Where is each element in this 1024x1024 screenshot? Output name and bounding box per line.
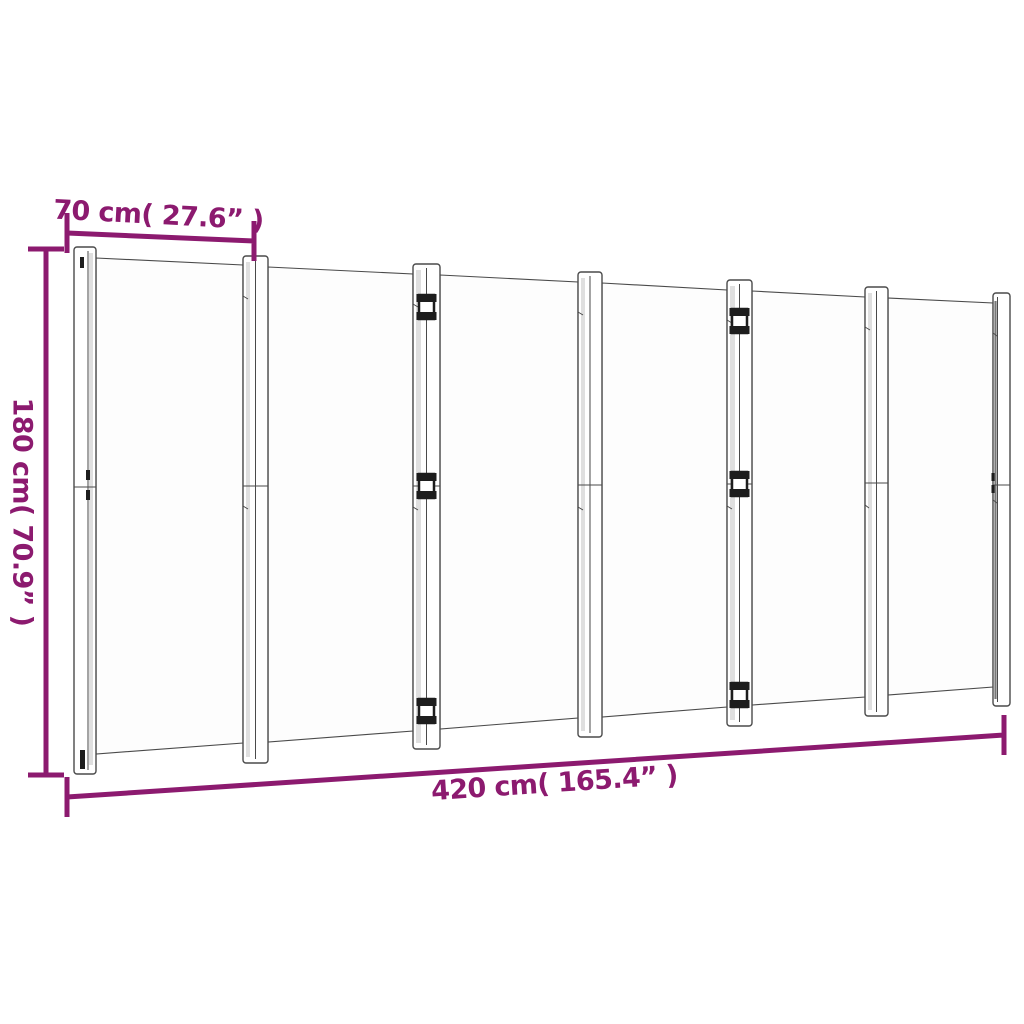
panel-1 [96,258,243,754]
post-7 [993,293,1010,706]
post-4 [578,272,602,737]
product-dimension-diagram: 70 cm( 27.6” ) 180 cm( 70.9” ) 420 cm( 1… [0,0,1024,1024]
panel-5 [752,291,865,705]
panel-width-dimension-label: 70 cm( 27.6” ) [52,195,264,237]
post-1 [74,247,96,774]
post-shading [246,262,250,757]
hinge [417,698,437,724]
hinge [730,471,750,497]
hinge [417,473,437,499]
post-2 [243,256,268,763]
post-shading [416,270,421,743]
panel-3 [440,275,578,729]
panels [96,258,993,754]
panel-2 [268,267,413,742]
hinge [730,308,750,334]
post-shading [89,253,93,765]
post-5 [727,280,752,726]
hinge [417,294,437,320]
post-shading [581,278,585,731]
panel-4 [602,283,727,717]
hinge [730,682,750,708]
panel-6 [888,298,993,695]
post-shading [868,293,872,710]
post-shading [730,286,735,720]
post-6 [865,287,888,716]
diagram-canvas: 70 cm( 27.6” ) 180 cm( 70.9” ) 420 cm( 1… [0,0,1024,1024]
height-dimension: 180 cm( 70.9” ) [7,249,65,775]
height-dimension-label: 180 cm( 70.9” ) [7,398,38,627]
post-3 [413,264,440,749]
